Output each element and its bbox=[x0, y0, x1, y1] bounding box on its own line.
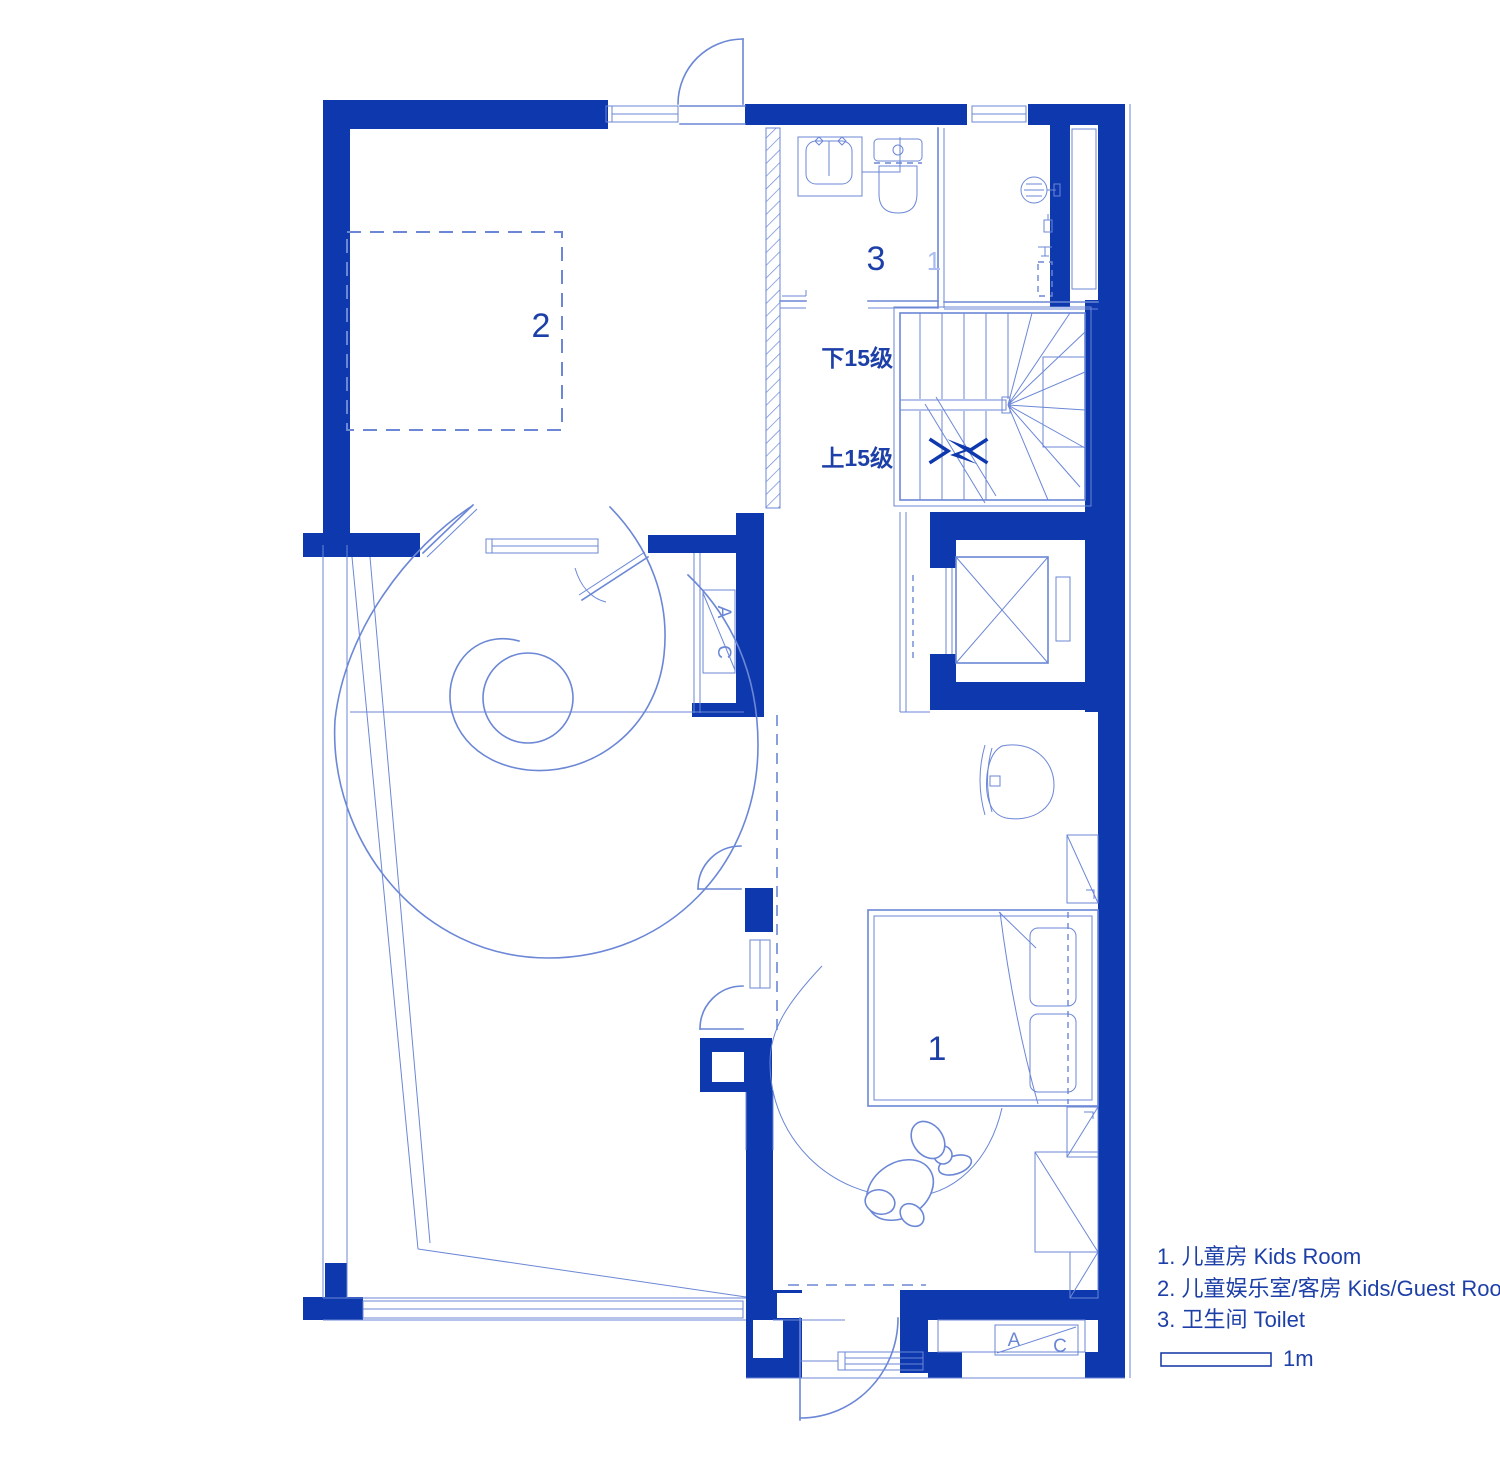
scale-bar bbox=[1161, 1353, 1271, 1366]
walls bbox=[303, 100, 1125, 1378]
ac-c-label: C bbox=[713, 645, 734, 659]
stair-up-label: 上15级 bbox=[821, 445, 893, 471]
teddy-toy bbox=[855, 1115, 974, 1233]
void-diagonal bbox=[352, 557, 430, 1249]
room-3-label: 3 bbox=[867, 240, 886, 278]
scale-label: 1m bbox=[1283, 1346, 1314, 1371]
floor-drain bbox=[1038, 262, 1052, 296]
duct-shaft bbox=[1072, 129, 1096, 289]
platform-dashed-outline bbox=[347, 232, 562, 430]
entry-door-top bbox=[678, 39, 745, 124]
room-1-label: 1 bbox=[928, 1030, 947, 1068]
door-playroom-2 bbox=[700, 986, 743, 1029]
window-band-bottom-left bbox=[363, 1301, 743, 1318]
ac-a-label: A bbox=[1008, 1330, 1021, 1351]
shower-tap-icon bbox=[1038, 247, 1052, 256]
stairs: 下15级 上15级 bbox=[821, 307, 1091, 506]
window-bathroom-top bbox=[972, 106, 1026, 122]
stair-handrail bbox=[900, 400, 1006, 410]
room-2-kids-guest: 2 bbox=[347, 232, 562, 430]
floor-plan-page: 2 bbox=[0, 0, 1500, 1458]
ac-c-label: C bbox=[1053, 1336, 1067, 1357]
legend-item-3: 3. 卫生间 Toilet bbox=[1157, 1307, 1305, 1332]
toilet bbox=[874, 139, 922, 213]
window-corridor-left bbox=[750, 940, 770, 988]
room-1-kids: 1 bbox=[770, 745, 1098, 1298]
stair-down-label: 下15级 bbox=[821, 345, 893, 371]
pillow bbox=[1030, 928, 1076, 1006]
door-playroom-1 bbox=[698, 846, 741, 889]
legend-item-2: 2. 儿童娱乐室/客房 Kids/Guest Room bbox=[1157, 1276, 1500, 1301]
floor-plan-canvas: 2 bbox=[0, 0, 1500, 1458]
stair-break-icon bbox=[925, 397, 996, 503]
play-room bbox=[323, 506, 758, 1320]
shower-faint-label: 1 bbox=[927, 246, 941, 276]
pillow bbox=[1030, 1014, 1076, 1092]
legend: 1. 儿童房 Kids Room 2. 儿童娱乐室/客房 Kids/Guest … bbox=[1157, 1244, 1500, 1371]
room-2-label: 2 bbox=[532, 307, 551, 345]
hatched-wall bbox=[766, 128, 780, 508]
ac-niche-bottom: A C bbox=[938, 1320, 1085, 1357]
elevator-counterweight bbox=[1056, 577, 1070, 641]
bed bbox=[868, 910, 1098, 1106]
legend-item-1: 1. 儿童房 Kids Room bbox=[1157, 1244, 1361, 1269]
mid-wall-window bbox=[486, 539, 598, 553]
desk-chair bbox=[980, 745, 1054, 819]
window-top-left bbox=[606, 106, 678, 122]
wardrobes bbox=[1035, 835, 1098, 1298]
